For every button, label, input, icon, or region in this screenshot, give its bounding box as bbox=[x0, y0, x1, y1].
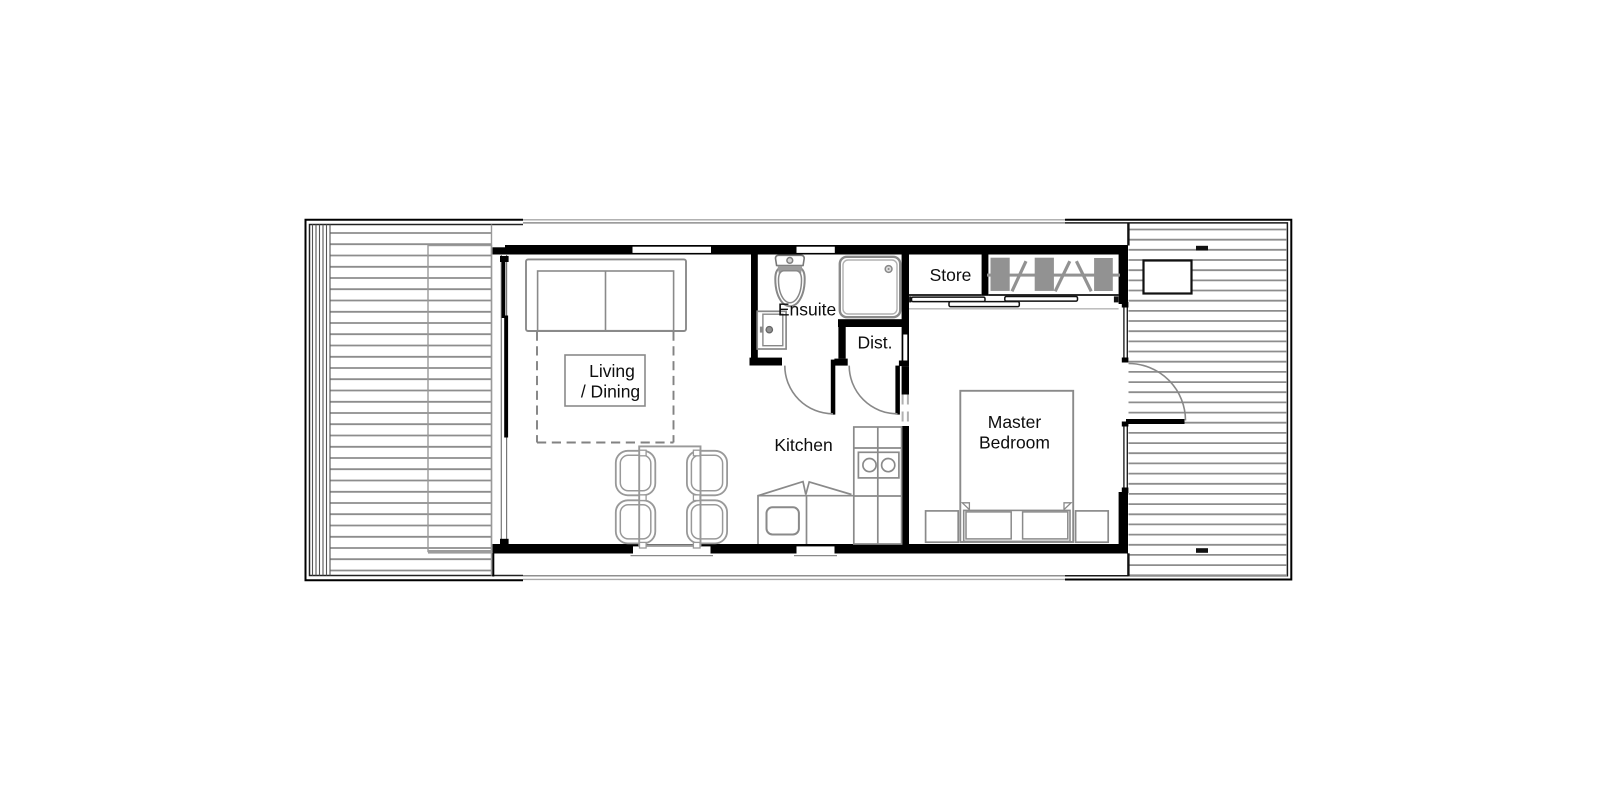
svg-text:Bedroom: Bedroom bbox=[979, 432, 1050, 452]
svg-text:Master: Master bbox=[988, 412, 1042, 432]
svg-text:/ Dining: / Dining bbox=[581, 382, 640, 402]
svg-text:Ensuite: Ensuite bbox=[778, 299, 836, 319]
svg-text:Kitchen: Kitchen bbox=[774, 435, 832, 455]
svg-text:Dist.: Dist. bbox=[858, 333, 893, 353]
svg-text:Living: Living bbox=[589, 361, 635, 381]
svg-text:Store: Store bbox=[930, 265, 972, 285]
